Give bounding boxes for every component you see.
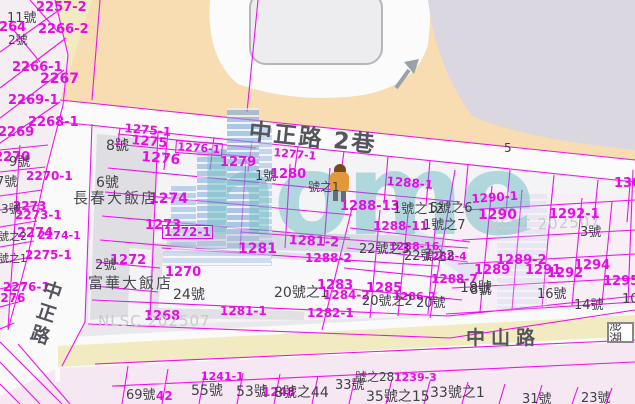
admin-label-text: 澎湖 [609, 322, 632, 343]
person-marker-icon [328, 164, 352, 202]
cadastral-map-canvas[interactable]: home 2257-211號22642266-22號2266-122672269… [0, 0, 635, 404]
parcel-map-layer [0, 0, 635, 404]
admin-label-box: 澎湖 [607, 322, 634, 343]
person-leg [333, 191, 338, 201]
person-leg [341, 191, 346, 201]
person-body [330, 172, 349, 192]
